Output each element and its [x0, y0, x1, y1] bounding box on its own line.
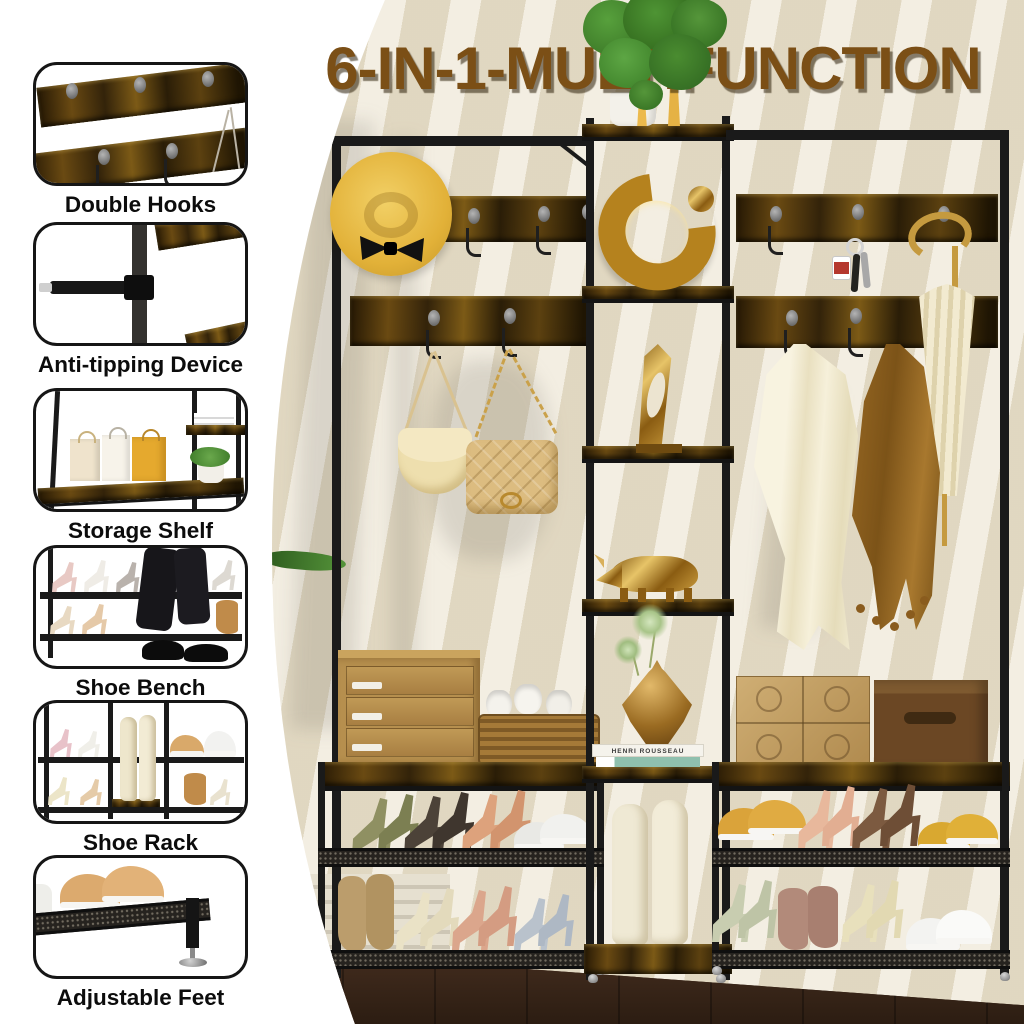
side-shelf	[186, 425, 248, 435]
book-spine	[596, 757, 700, 767]
heel-shoe	[82, 604, 114, 634]
mesh-shelf	[318, 950, 604, 969]
anti-tip-clamp	[124, 275, 154, 300]
feature-item-double-hooks: Double Hooks	[33, 62, 248, 218]
plant	[190, 447, 230, 467]
heel-shoe	[50, 606, 82, 634]
white-sneaker	[204, 731, 236, 757]
keychain-tag-art	[834, 262, 849, 274]
thumbnail-storage-shelf	[33, 388, 248, 512]
wall-anchor-pin	[39, 283, 52, 292]
books-stack	[194, 413, 234, 425]
hook-icon	[164, 159, 179, 186]
drawer	[346, 728, 474, 757]
tower-base	[584, 944, 732, 974]
right-bench-top	[712, 762, 1010, 791]
hook-icon	[536, 226, 551, 255]
left-bench-top	[318, 762, 604, 791]
heel-shoe	[48, 777, 76, 805]
feature-item-shoe-bench: Shoe Bench	[33, 545, 248, 701]
hook-icon	[96, 165, 111, 186]
hook-icon	[66, 83, 78, 99]
pompom	[890, 622, 899, 631]
shopping-bag	[70, 439, 100, 481]
tan-bootie	[184, 773, 206, 805]
heel-shoe	[84, 560, 116, 592]
bag-clasp	[500, 492, 522, 509]
rolled-towel	[514, 684, 542, 714]
drawer-handle	[352, 682, 382, 689]
feature-label: Shoe Rack	[33, 830, 248, 856]
dandelion-flower	[632, 604, 668, 640]
saddle-bag-flap	[398, 428, 472, 462]
foliage	[649, 34, 711, 90]
mesh-shelf	[712, 848, 1010, 867]
drawer-handle	[352, 744, 382, 751]
sandal	[210, 779, 236, 805]
pompom	[872, 616, 881, 625]
feature-label: Storage Shelf	[33, 518, 248, 544]
drawer	[346, 697, 474, 726]
book-spine: HENRI ROUSSEAU	[592, 744, 704, 757]
adjustable-foot-disc	[179, 958, 207, 967]
heel-shoe	[50, 729, 78, 757]
wicker-basket	[478, 714, 600, 766]
hook-icon	[466, 228, 481, 257]
product-image: HENRI ROUSSEAU	[0, 0, 1024, 1024]
hook-board	[155, 222, 248, 251]
drawer-handle	[352, 713, 382, 720]
cream-tall-boot	[652, 800, 688, 946]
rhino-leg	[620, 588, 628, 602]
tower-shelf	[582, 124, 734, 141]
hook-board	[350, 296, 592, 346]
shopping-bag	[132, 437, 166, 481]
heel-shoe	[80, 779, 108, 805]
feature-item-adjustable-feet: Adjustable Feet	[33, 855, 248, 1011]
umbrella-shaft	[952, 246, 958, 288]
thumbnail-shoe-rack	[33, 700, 248, 824]
umbrella-tip	[942, 494, 947, 546]
boot	[216, 600, 238, 634]
pompom	[906, 610, 915, 619]
stitched-ring	[756, 734, 782, 760]
bench-leg	[1002, 762, 1009, 972]
adjustable-foot	[712, 966, 722, 975]
mesh-shelf	[318, 848, 604, 867]
hook-icon	[850, 308, 862, 324]
rhino-leg	[666, 588, 674, 602]
feature-label: Adjustable Feet	[33, 985, 248, 1011]
hook-icon	[98, 149, 110, 165]
bag-handle	[142, 429, 160, 441]
hook-icon	[538, 206, 550, 222]
storage-box	[874, 680, 988, 770]
hook-icon	[202, 71, 214, 87]
rhino-figurine	[610, 556, 698, 592]
adjustable-foot	[716, 974, 726, 983]
adjustable-foot	[1000, 972, 1010, 981]
frame-leg	[186, 898, 199, 948]
potted-plant	[565, 0, 740, 117]
tan-boot	[338, 876, 366, 952]
bag-handle	[109, 427, 127, 439]
shelf-bar	[40, 634, 242, 641]
box-handle-slot	[904, 712, 956, 724]
foliage	[629, 80, 663, 110]
rhino-leg	[638, 588, 646, 602]
stitched-ring	[756, 686, 782, 712]
tan-sneaker	[170, 735, 204, 757]
hook-icon	[166, 143, 178, 159]
mauve-ankle-boot	[808, 886, 838, 948]
feature-item-storage-shelf: Storage Shelf	[33, 388, 248, 544]
adjustable-foot	[318, 966, 328, 975]
stitched-ring	[824, 686, 850, 712]
feature-item-anti-tipping: Anti-tipping Device	[33, 222, 248, 378]
dandelion-flower	[614, 636, 642, 664]
pompom	[920, 596, 929, 605]
cream-tall-boot	[612, 804, 648, 946]
shelf-bar	[38, 807, 244, 813]
hook-icon	[786, 310, 798, 326]
thumbnail-shoe-bench	[33, 545, 248, 669]
hook-icon	[852, 204, 864, 220]
person-leg	[173, 547, 210, 625]
tan-boot	[366, 874, 394, 950]
feature-label: Double Hooks	[33, 192, 248, 218]
cabinet-seam	[736, 722, 870, 724]
black-shoe	[184, 644, 228, 662]
feature-label: Shoe Bench	[33, 675, 248, 701]
mesh-shelf	[712, 950, 1010, 969]
thumbnail-double-hooks	[33, 62, 248, 186]
thumbnail-anti-tipping	[33, 222, 248, 346]
bag-handle	[78, 431, 96, 443]
hook-icon	[504, 308, 516, 324]
hat-bow-knot	[384, 242, 397, 255]
hook-icon	[428, 310, 440, 326]
cream-tall-boot	[139, 715, 156, 801]
sculpture-base	[636, 444, 682, 453]
cream-tall-boot	[120, 717, 137, 801]
hook-icon	[768, 226, 783, 255]
hook-board	[185, 320, 248, 346]
hat-crown	[364, 192, 418, 238]
tan-sneaker	[102, 866, 164, 902]
hook-icon	[770, 206, 782, 222]
frame-post	[48, 548, 53, 658]
hook-icon	[848, 328, 863, 357]
feature-label: Anti-tipping Device	[33, 352, 248, 378]
adjustable-foot	[588, 974, 598, 983]
rhino-leg	[684, 588, 692, 602]
heel-shoe	[212, 560, 242, 590]
heel-shoe	[78, 731, 106, 757]
right-unit-top-beam	[726, 130, 1008, 140]
stitched-ring	[824, 734, 850, 760]
black-shoe	[142, 640, 184, 660]
drawer	[346, 666, 474, 695]
thumbnail-adjustable-feet	[33, 855, 248, 979]
heel-shoe	[52, 562, 84, 592]
shopping-bag	[102, 435, 130, 481]
feature-item-shoe-rack: Shoe Rack	[33, 700, 248, 856]
mauve-ankle-boot	[778, 888, 808, 950]
pompom	[856, 604, 865, 613]
tower-post	[586, 118, 594, 980]
hook-icon	[134, 77, 146, 93]
hook-icon	[468, 208, 480, 224]
gold-horn-tip	[688, 186, 714, 212]
